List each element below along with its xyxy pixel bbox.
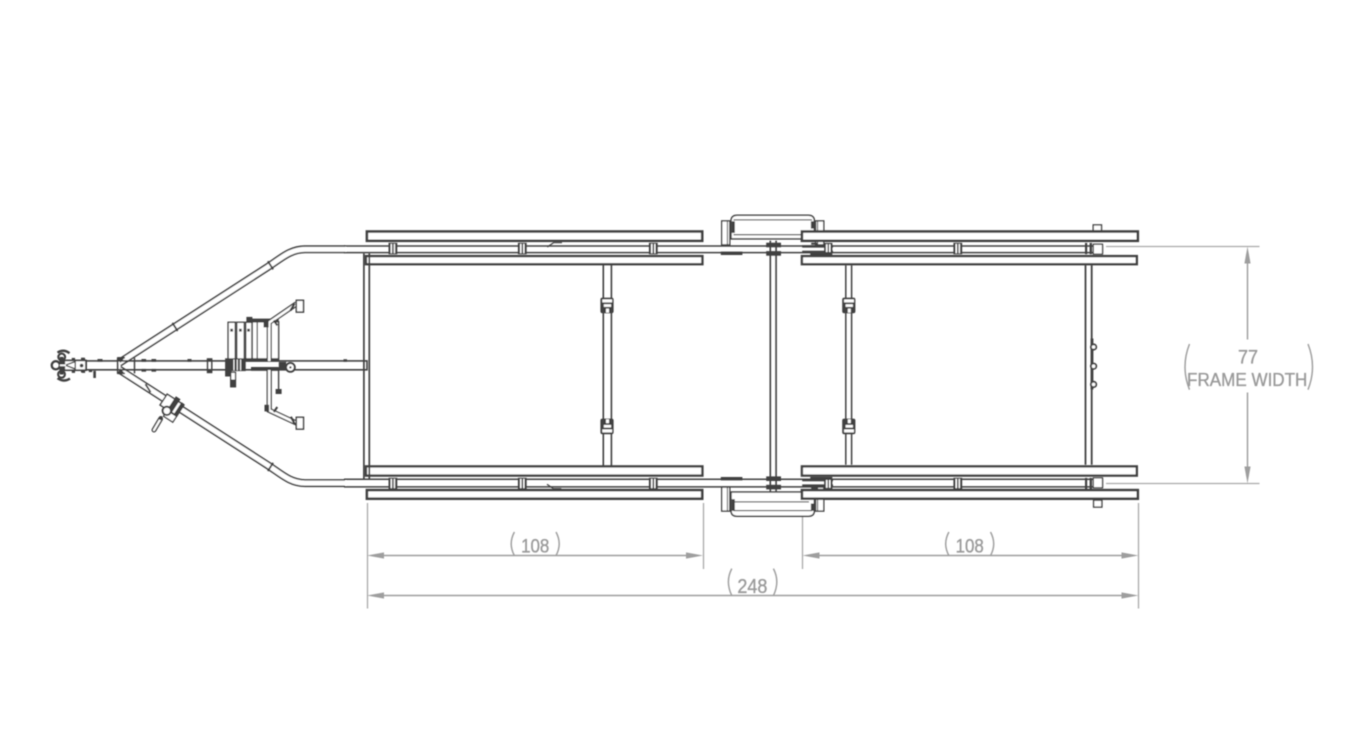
- svg-text:FRAME WIDTH: FRAME WIDTH: [1187, 370, 1307, 390]
- svg-text:248: 248: [737, 576, 767, 598]
- svg-text:77: 77: [1238, 347, 1258, 369]
- svg-text:108: 108: [521, 536, 549, 558]
- svg-text:108: 108: [956, 536, 984, 558]
